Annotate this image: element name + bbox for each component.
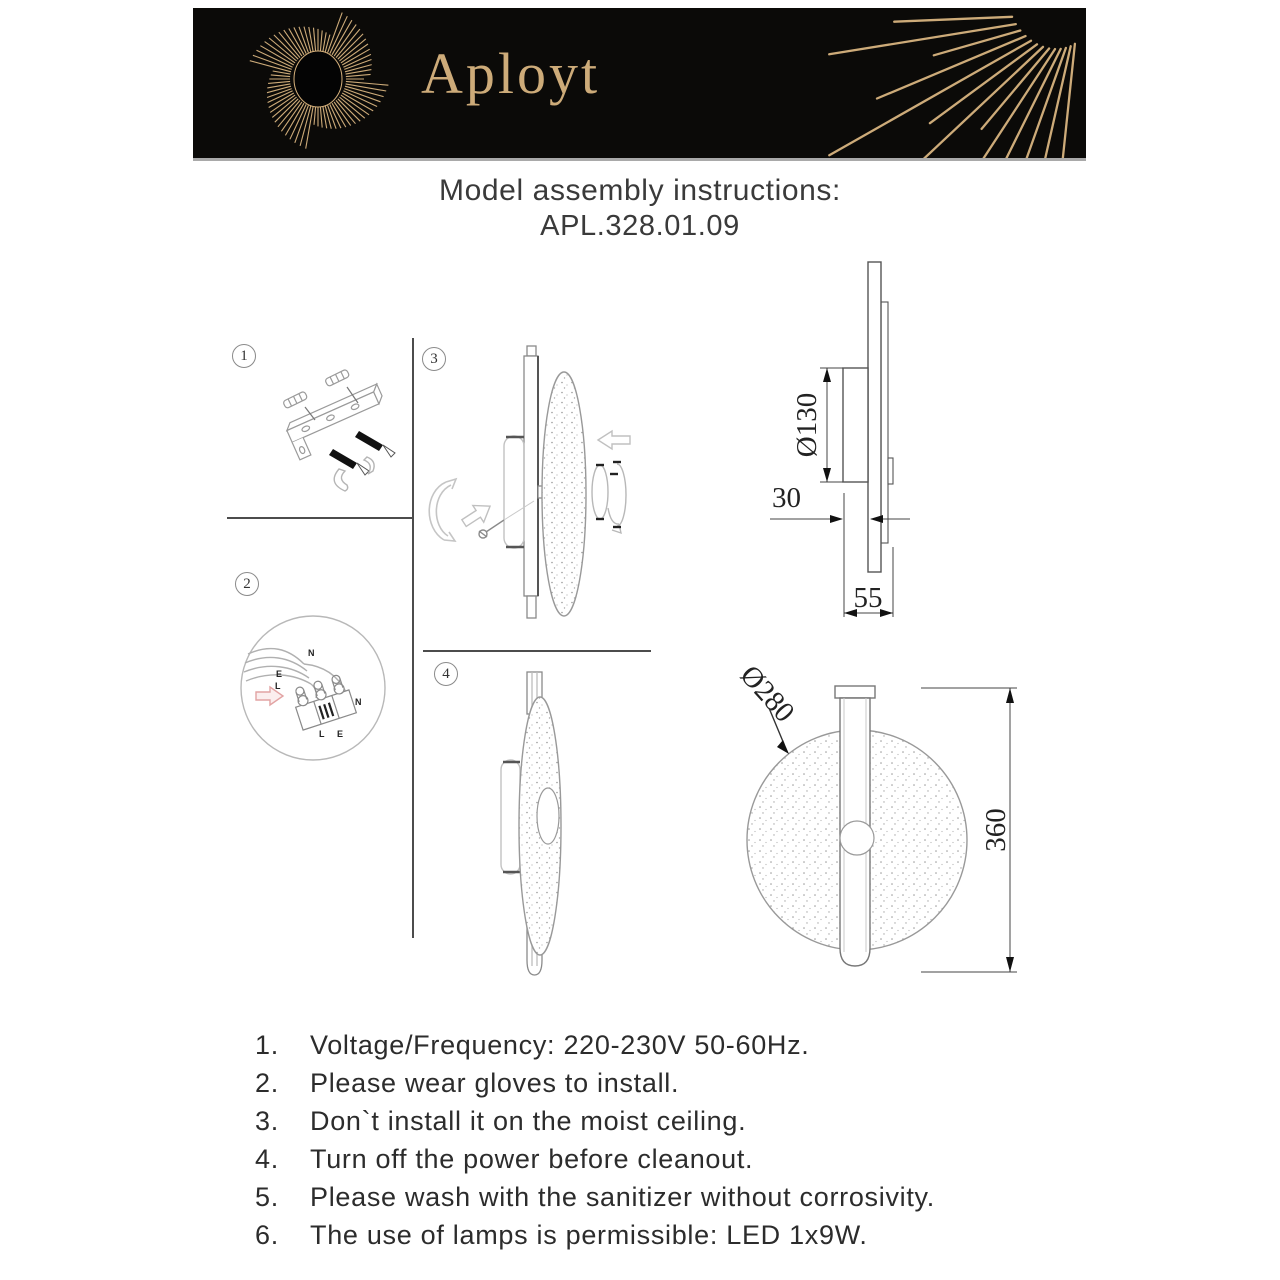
side-view-dimension-drawing: Ø130 30 55: [770, 255, 970, 625]
instruction-number: 2.: [255, 1068, 310, 1099]
instruction-text: Don`t install it on the moist ceiling.: [310, 1106, 746, 1137]
wire-label-e-left: E: [276, 669, 282, 679]
instruction-text: The use of lamps is permissible: LED 1x9…: [310, 1220, 868, 1251]
step-2-badge: 2: [235, 572, 259, 596]
instruction-item: 5. Please wash with the sanitizer withou…: [255, 1178, 1115, 1216]
horizontal-divider-right: [423, 650, 651, 652]
dim-side-depth: 55: [854, 582, 883, 614]
instruction-item: 3. Don`t install it on the moist ceiling…: [255, 1102, 1115, 1140]
instruction-number: 4.: [255, 1144, 310, 1175]
dim-front-diameter: Ø280: [734, 659, 801, 728]
wire-label-l-left: L: [275, 681, 281, 691]
instruction-number: 5.: [255, 1182, 310, 1213]
brand-name: Aployt: [421, 42, 600, 106]
instruction-number: 6.: [255, 1220, 310, 1251]
front-view-dimension-drawing: Ø280 360: [725, 650, 1025, 990]
horizontal-divider-left: [227, 517, 414, 519]
corner-rays-decoration-icon: [806, 8, 1086, 158]
model-number: APL.328.01.09: [0, 210, 1280, 243]
vertical-divider: [412, 338, 414, 938]
instruction-item: 2. Please wear gloves to install.: [255, 1064, 1115, 1102]
instruction-text: Please wash with the sanitizer without c…: [310, 1182, 935, 1213]
instruction-sheet: Aployt Model assembly instructions: APL.…: [0, 0, 1280, 1280]
starburst-logo-icon: [243, 8, 393, 154]
instruction-item: 6. The use of lamps is permissible: LED …: [255, 1216, 1115, 1254]
step-4-diagram: [455, 660, 625, 980]
instruction-text: Turn off the power before cleanout.: [310, 1144, 753, 1175]
instruction-item: 4. Turn off the power before cleanout.: [255, 1140, 1115, 1178]
wire-label-e-bottom: E: [337, 729, 343, 739]
step-3-diagram: [420, 340, 660, 630]
step-2-wiring-diagram: N E L N L E: [238, 610, 398, 770]
page-title: Model assembly instructions:: [0, 174, 1280, 208]
wire-label-n-top: N: [308, 648, 315, 658]
instruction-text: Please wear gloves to install.: [310, 1068, 679, 1099]
instructions-list: 1. Voltage/Frequency: 220-230V 50-60Hz. …: [255, 1026, 1115, 1254]
step-1-diagram: [255, 365, 405, 500]
wire-label-l-bottom: L: [319, 729, 325, 739]
step-1-badge: 1: [232, 344, 256, 368]
instruction-text: Voltage/Frequency: 220-230V 50-60Hz.: [310, 1030, 810, 1061]
instruction-number: 1.: [255, 1030, 310, 1061]
brand-banner: Aployt: [193, 8, 1086, 161]
dim-side-diameter: Ø130: [791, 393, 823, 457]
wire-label-n-right: N: [355, 697, 362, 707]
instruction-number: 3.: [255, 1106, 310, 1137]
instruction-item: 1. Voltage/Frequency: 220-230V 50-60Hz.: [255, 1026, 1115, 1064]
dim-side-offset: 30: [772, 482, 801, 514]
dim-front-height: 360: [980, 808, 1012, 852]
